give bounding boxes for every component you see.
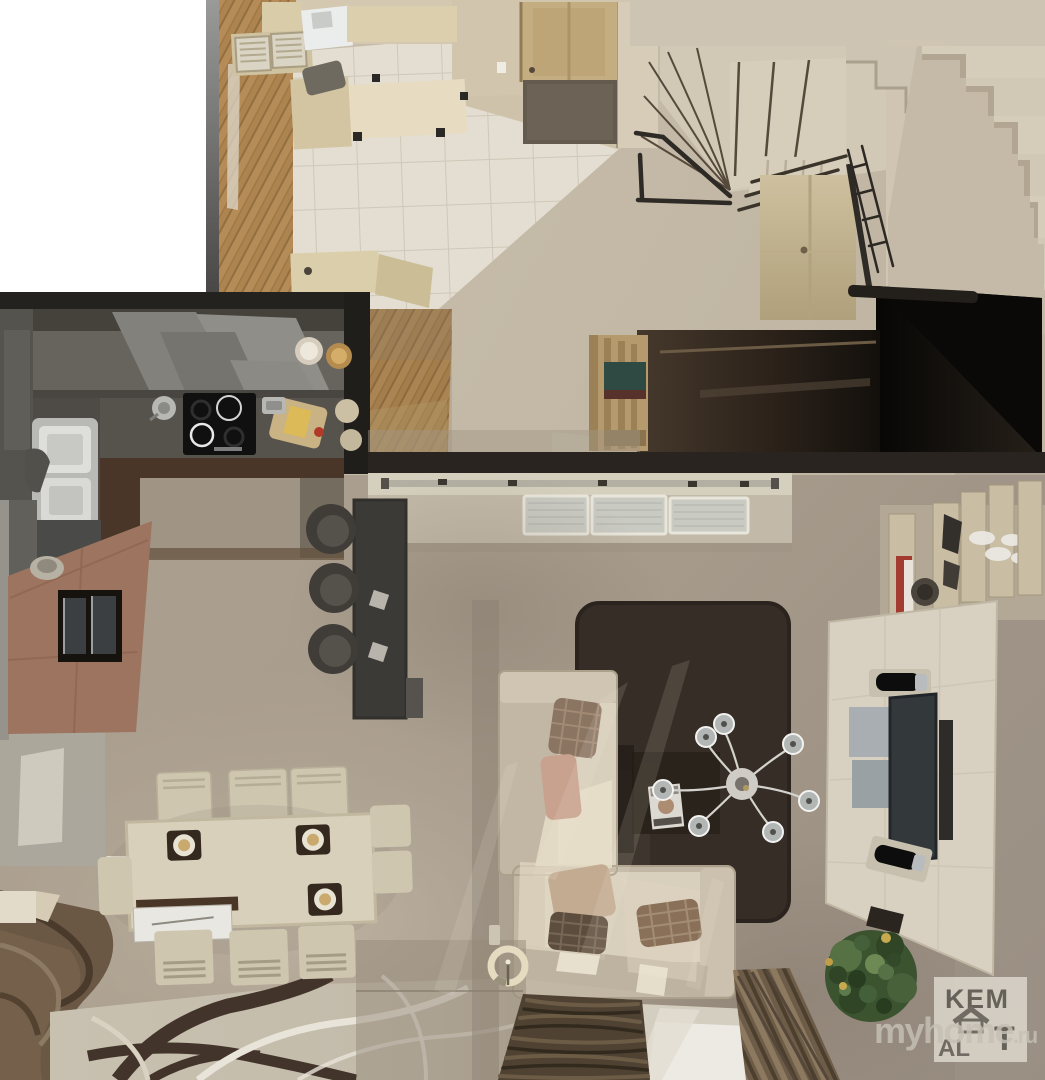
svg-text:myhome.ru: myhome.ru [874, 1010, 1037, 1051]
